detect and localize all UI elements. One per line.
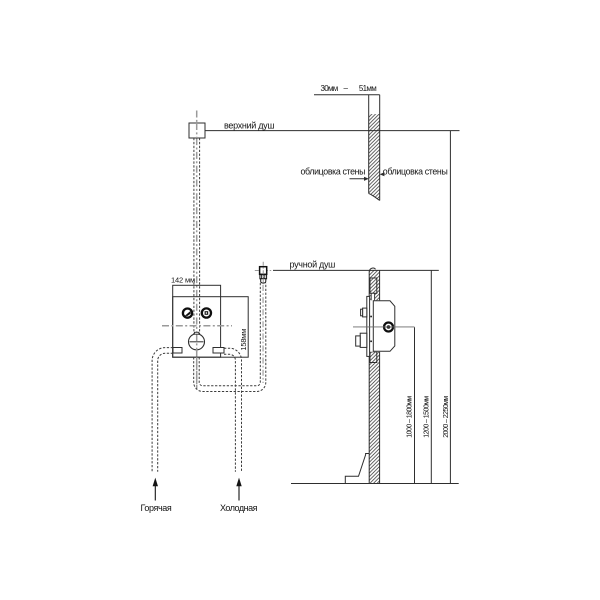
svg-text:51мм: 51мм (359, 84, 376, 93)
svg-text:1000 – 1800мм: 1000 – 1800мм (406, 396, 413, 438)
svg-text:облицовка стены: облицовка стены (383, 166, 448, 176)
svg-text:облицовка стены: облицовка стены (301, 166, 366, 176)
svg-text:ручной душ: ручной душ (290, 259, 336, 269)
svg-text:–: – (344, 83, 349, 92)
svg-text:30мм: 30мм (321, 84, 338, 93)
svg-text:2000 – 2250мм: 2000 – 2250мм (443, 396, 450, 438)
svg-text:142 мм: 142 мм (171, 276, 195, 285)
svg-text:Горячая: Горячая (141, 503, 172, 513)
svg-text:Холодная: Холодная (220, 503, 258, 513)
svg-text:верхний душ: верхний душ (224, 121, 274, 131)
svg-text:1200 – 1500мм: 1200 – 1500мм (424, 396, 431, 438)
svg-text:158мм: 158мм (239, 329, 248, 351)
